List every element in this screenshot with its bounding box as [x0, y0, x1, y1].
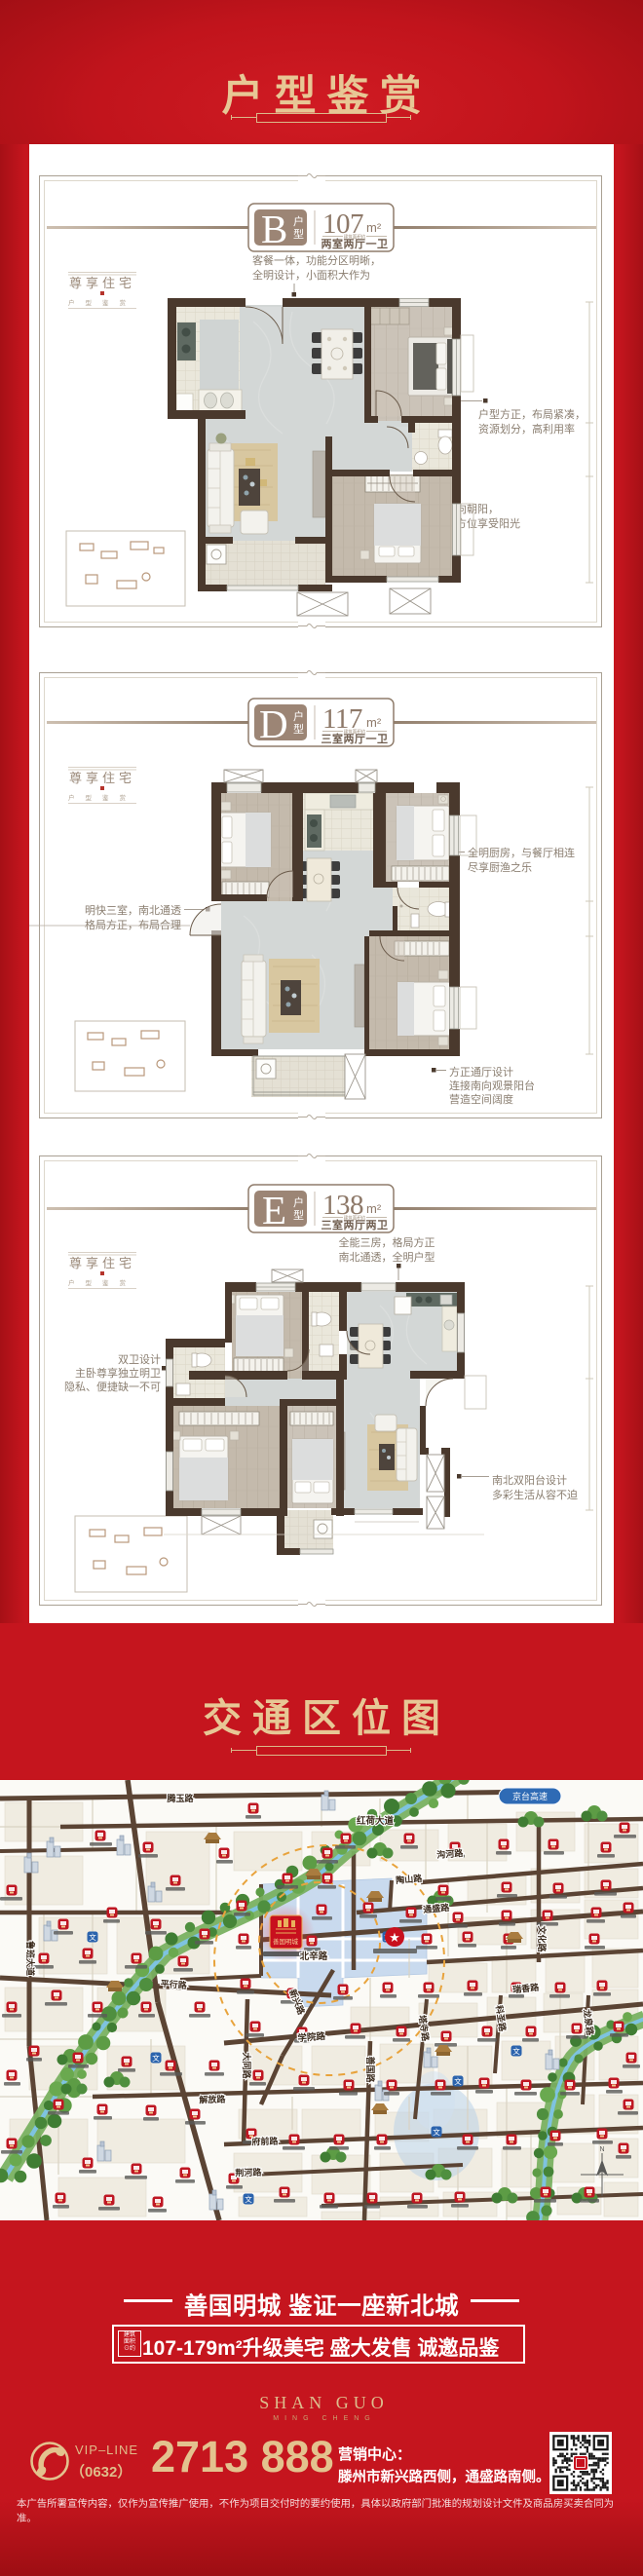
svg-text:户型鉴赏: 户型鉴赏 — [68, 298, 136, 307]
svg-text:尊享住宅: 尊享住宅 — [69, 276, 135, 290]
svg-text:沟河路: 沟河路 — [436, 1847, 465, 1860]
svg-text:两室两厅一卫: 两室两厅一卫 — [321, 237, 389, 250]
svg-text:★: ★ — [389, 1930, 400, 1945]
svg-text:文: 文 — [89, 1932, 96, 1942]
svg-text:双卫设计: 双卫设计 — [118, 1353, 161, 1366]
svg-text:鲁班大道: 鲁班大道 — [25, 1941, 36, 1976]
svg-text:格局方正，布局合理: 格局方正，布局合理 — [85, 918, 181, 931]
svg-text:善国路: 善国路 — [365, 2056, 376, 2083]
svg-text:型: 型 — [293, 1208, 304, 1222]
svg-text:户: 户 — [293, 709, 304, 723]
svg-text:红荷大道: 红荷大道 — [357, 1815, 395, 1827]
svg-text:北辛路: 北辛路 — [300, 1951, 328, 1962]
svg-text:尽享厨渔之乐: 尽享厨渔之乐 — [468, 860, 532, 874]
svg-text:m²: m² — [366, 220, 382, 235]
svg-text:D: D — [259, 701, 288, 746]
svg-text:隐私、便捷缺一不可: 隐私、便捷缺一不可 — [64, 1380, 161, 1393]
svg-text:营造空间阔度: 营造空间阔度 — [449, 1092, 513, 1106]
svg-text:m²: m² — [366, 1201, 382, 1216]
svg-text:m²: m² — [366, 715, 382, 730]
svg-text:文: 文 — [454, 2076, 462, 2086]
svg-text:南北通透，全明户型: 南北通透，全明户型 — [339, 1250, 435, 1264]
svg-text:善国明城: 善国明城 — [273, 1937, 299, 1946]
svg-text:南北双阳台设计: 南北双阳台设计 — [492, 1473, 567, 1487]
svg-text:E: E — [262, 1188, 286, 1232]
svg-text:户型鉴赏: 户型鉴赏 — [68, 1278, 136, 1287]
svg-text:全明设计，小面积大作为: 全明设计，小面积大作为 — [252, 268, 370, 282]
svg-text:资源划分，高利用率: 资源划分，高利用率 — [478, 422, 575, 436]
svg-text:客餐一体，功能分区明晰，: 客餐一体，功能分区明晰， — [252, 253, 381, 267]
svg-text:户型鉴赏: 户型鉴赏 — [68, 793, 136, 802]
svg-text:文: 文 — [433, 2127, 440, 2137]
svg-text:户: 户 — [293, 214, 304, 228]
svg-text:尊享住宅: 尊享住宅 — [69, 1256, 135, 1270]
svg-text:明快三室，南北通透: 明快三室，南北通透 — [85, 903, 181, 917]
svg-text:全能三房，格局方正: 全能三房，格局方正 — [339, 1235, 435, 1249]
svg-text:B: B — [261, 207, 287, 251]
svg-text:户型方正，布局紧凑，: 户型方正，布局紧凑， — [478, 407, 586, 421]
svg-text:文化路: 文化路 — [537, 1924, 548, 1952]
svg-text:文: 文 — [152, 2053, 160, 2063]
svg-text:三室两厅一卫: 三室两厅一卫 — [321, 732, 389, 745]
svg-text:连接南向观景阳台: 连接南向观景阳台 — [449, 1079, 535, 1092]
svg-text:主卧尊享独立明卫: 主卧尊享独立明卫 — [75, 1366, 161, 1380]
svg-text:大同路: 大同路 — [242, 2052, 252, 2079]
svg-text:型: 型 — [293, 722, 304, 736]
svg-text:京台高速: 京台高速 — [512, 1791, 548, 1801]
svg-text:府前路: 府前路 — [251, 2135, 279, 2146]
svg-text:N: N — [599, 2146, 604, 2153]
svg-text:平行路: 平行路 — [160, 1978, 188, 1990]
svg-text:文: 文 — [512, 2046, 520, 2056]
svg-text:文: 文 — [245, 2194, 252, 2204]
svg-text:解放路: 解放路 — [199, 2093, 226, 2104]
svg-text:多彩生活从容不迫: 多彩生活从容不迫 — [492, 1488, 578, 1501]
svg-text:方正通厅设计: 方正通厅设计 — [449, 1065, 513, 1079]
svg-text:尊享住宅: 尊享住宅 — [69, 771, 135, 785]
svg-text:全明厨房，与餐厅相连: 全明厨房，与餐厅相连 — [468, 846, 575, 859]
svg-text:型: 型 — [293, 227, 304, 241]
svg-text:腾玉路: 腾玉路 — [166, 1793, 194, 1803]
svg-text:学院路: 学院路 — [297, 2030, 326, 2044]
svg-text:荆河路: 荆河路 — [235, 2166, 262, 2178]
svg-text:三室两厅两卫: 三室两厅两卫 — [321, 1218, 389, 1231]
svg-text:户: 户 — [293, 1195, 304, 1209]
